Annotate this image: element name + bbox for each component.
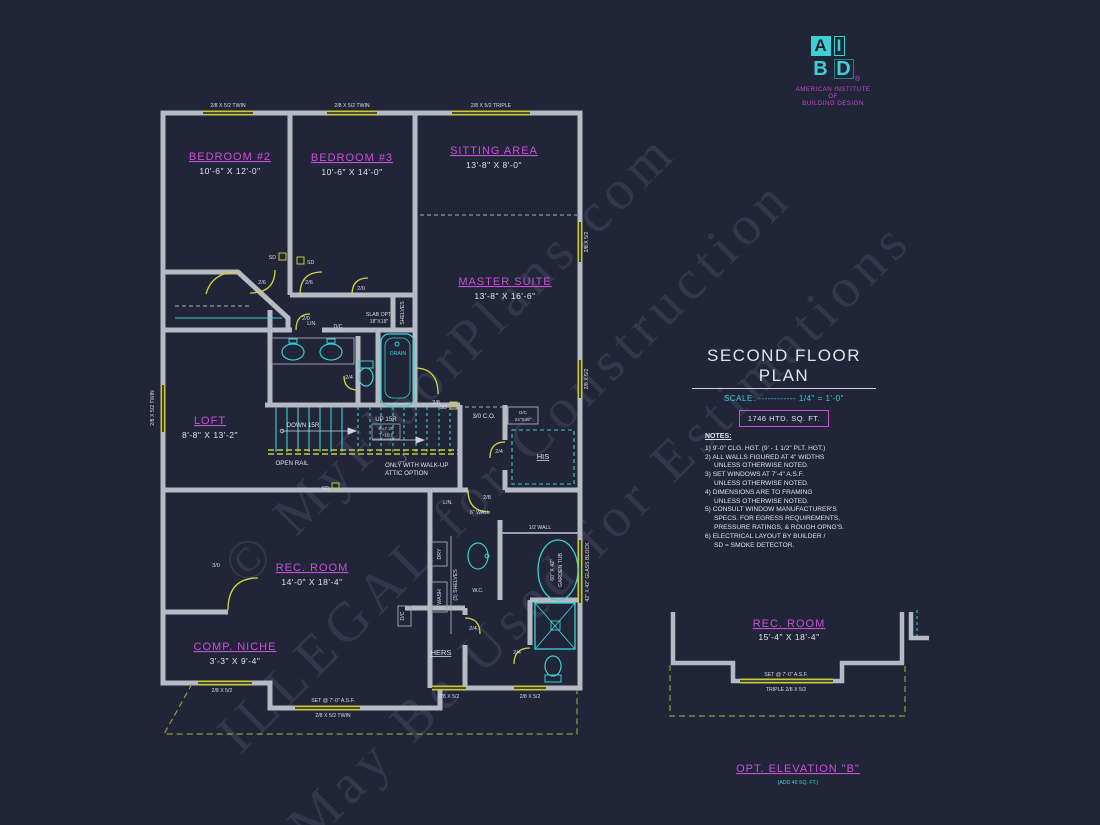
interior-walls bbox=[163, 113, 580, 688]
section-dims: 15'-4" X 18'-4" bbox=[758, 632, 819, 642]
hall-bath-fixtures bbox=[272, 334, 414, 406]
door-label: 2/0 bbox=[357, 286, 365, 292]
tread-label: T=10.5 bbox=[379, 433, 394, 438]
window-label: 2/8 X 5/2 bbox=[439, 694, 460, 700]
window-label: 2/8 X 5/2 TRIPLE bbox=[471, 103, 512, 109]
note-line: SD = SMOKE DETECTOR. bbox=[705, 542, 855, 551]
six-inch-wall-label: 6" WALL bbox=[470, 510, 490, 516]
dc-label: D/C bbox=[400, 611, 406, 620]
door-label: 3/0 bbox=[212, 563, 220, 569]
room-label-loft: LOFT bbox=[194, 415, 226, 427]
registered-mark: ® bbox=[855, 76, 860, 83]
note-line: 1) 9'-0" CLG. HGT. (9' - 1 1/2" PLT. HGT… bbox=[705, 445, 855, 454]
window-label: 2/8 X 5/2 TWIN bbox=[315, 713, 351, 719]
sd-label: SD bbox=[440, 405, 447, 411]
linen-label: LIN. bbox=[443, 500, 453, 506]
blueprint-page: © MyFloorPlans.com ILLEGAL for Construct… bbox=[0, 0, 1100, 825]
door-label: 2/6 bbox=[258, 280, 266, 286]
note-line: UNLESS OTHERWISE NOTED. bbox=[705, 462, 855, 471]
stair-treads bbox=[276, 407, 342, 452]
window-label: 2/8 X 5/2 bbox=[584, 369, 590, 390]
aibd-logo-mark: A I B D bbox=[811, 36, 856, 81]
note-line: 6) ELECTRICAL LAYOUT BY BUILDER / bbox=[705, 533, 855, 542]
outer-walls bbox=[163, 113, 580, 708]
sd-label: SD bbox=[269, 255, 276, 261]
shelves-label: SHELVES bbox=[400, 301, 406, 325]
stairs-down-label: DOWN 15R bbox=[287, 422, 320, 429]
slab-opt-line2: 18"X18" bbox=[370, 319, 389, 325]
note-line: SPECS. FOR EGRESS REQUIREMENTS, bbox=[705, 515, 855, 524]
room-dims-bedroom2: 10'-6" X 12'-0" bbox=[199, 166, 260, 176]
door-label: 2/6 bbox=[305, 280, 313, 286]
sheet-title: SECOND FLOOR PLAN bbox=[692, 346, 876, 389]
his-closet-label: HIS bbox=[537, 452, 550, 461]
floor-plan-drawing: 2/8 X 5/2 TWIN 2/8 X 5/2 TWIN 2/8 X 5/2 … bbox=[0, 0, 1100, 825]
attic-note-line1: ONLY WITH WALK-UP bbox=[385, 462, 448, 469]
logo-letter-i: I bbox=[834, 36, 845, 56]
opt-elevation-subtitle: (ADD 40 SQ. FT.) bbox=[778, 780, 819, 786]
window-set-label: SET @ 7'-0" A.S.F. bbox=[311, 698, 354, 704]
window-label: 2/8 X 5/2 TWIN bbox=[334, 103, 370, 109]
door-label: 2/4 bbox=[513, 650, 521, 656]
windows bbox=[163, 113, 580, 708]
dc-label: D/C bbox=[334, 324, 343, 330]
notes-heading: NOTES: bbox=[705, 433, 855, 442]
window-label: 2/8 X 5/2 bbox=[212, 688, 233, 694]
aibd-org-line3: BUILDING DESIGN bbox=[795, 100, 871, 107]
note-line: PRESSURE RATINGS, & ROUGH OPNG'S. bbox=[705, 524, 855, 533]
linen-label: LIN. bbox=[307, 321, 317, 327]
aibd-org-line1: AMERICAN INSTITUTE bbox=[795, 86, 871, 93]
window-label: 2/8 X 5/2 bbox=[520, 694, 541, 700]
aibd-logo: A I B D ® AMERICAN INSTITUTE OF BUILDING… bbox=[795, 36, 871, 108]
room-dims-sitting: 13'-8" X 8'-0" bbox=[466, 160, 522, 170]
logo-letter-d: D bbox=[834, 59, 854, 79]
washer-label: WASH bbox=[437, 589, 443, 605]
note-line: UNLESS OTHERWISE NOTED. bbox=[705, 480, 855, 489]
window-label: 2/8 X 5/2 TWIN bbox=[210, 103, 246, 109]
hers-closet-label: HERS bbox=[431, 648, 452, 657]
glass-block-label: 42" X 42" GLASS BLOCK bbox=[585, 542, 591, 602]
notes-block: NOTES: 1) 9'-0" CLG. HGT. (9' - 1 1/2" P… bbox=[705, 433, 855, 550]
logo-letter-b: B bbox=[811, 59, 831, 79]
logo-letter-a: A bbox=[811, 36, 831, 56]
room-dims-loft: 8'-8" X 13'-2" bbox=[182, 430, 238, 440]
open-rail bbox=[268, 450, 458, 454]
note-line: 2) ALL WALLS FIGURED AT 4" WIDTHS bbox=[705, 454, 855, 463]
riser-label: R=7.25 bbox=[379, 426, 394, 431]
aibd-org-line2: OF bbox=[795, 93, 871, 100]
section-window-label: TRIPLE 2/8 X 5/2 bbox=[766, 687, 806, 693]
attic-leader bbox=[398, 454, 406, 462]
note-line: 3) SET WINDOWS AT 7'-4" A.S.F. bbox=[705, 471, 855, 480]
section-title: REC. ROOM bbox=[753, 618, 826, 630]
room-dims-master: 13'-8" X 16'-6" bbox=[474, 291, 535, 301]
door-label: 2/4 bbox=[495, 449, 503, 455]
dc-size-label: 24"X36" bbox=[515, 417, 532, 422]
dryer-label: DRY bbox=[437, 548, 443, 559]
dc-label: D/C bbox=[519, 410, 528, 415]
slab-opt-line1: SLAB OPT. bbox=[366, 312, 392, 318]
sd-label: SD bbox=[322, 486, 329, 492]
aibd-org-name: AMERICAN INSTITUTE OF BUILDING DESIGN bbox=[795, 86, 871, 108]
opt-elevation-title: OPT. ELEVATION "B" bbox=[736, 763, 860, 775]
door-label: 2/4 bbox=[345, 375, 353, 381]
window-label: 2/8 X 5/2 bbox=[584, 232, 590, 253]
title-block: SECOND FLOOR PLAN SCALE: ------------ 1/… bbox=[692, 346, 876, 427]
note-line: 4) DIMENSIONS ARE TO FRAMING bbox=[705, 489, 855, 498]
wc-label: W.C. bbox=[472, 588, 483, 594]
heated-sqft-badge: 1746 HTD. SQ. FT. bbox=[739, 410, 829, 427]
stair-arrows bbox=[280, 428, 424, 443]
half-wall-label: 1/2 WALL bbox=[529, 525, 552, 531]
note-line: UNLESS OTHERWISE NOTED. bbox=[705, 498, 855, 507]
room-label-comp-niche: COMP. NICHE bbox=[194, 641, 277, 653]
window-label: 2/8 X 5/2 TWIN bbox=[150, 390, 156, 426]
scale-note: SCALE: ------------ 1/4" = 1'-0" bbox=[692, 394, 876, 403]
section-set-label: SET @ 7'-0" A.S.F. bbox=[764, 672, 807, 678]
room-label-master: MASTER SUITE bbox=[458, 276, 551, 288]
attic-note-line2: ATTIC OPTION bbox=[385, 470, 428, 477]
note-line: 5) CONSULT WINDOW MANUFACTURER'S bbox=[705, 506, 855, 515]
door-label: 2/8 bbox=[483, 495, 491, 501]
room-dims-comp-niche: 3'-3" X 9'-4" bbox=[210, 656, 261, 666]
room-label-bedroom3: BEDROOM #3 bbox=[311, 152, 393, 164]
stairs-up-label: UP 15R bbox=[375, 416, 397, 423]
cased-opening-label: 3/0 C.O. bbox=[472, 413, 495, 420]
sd-label: SD bbox=[307, 260, 314, 266]
room-label-rec: REC. ROOM bbox=[276, 562, 349, 574]
shelves3-label: (3) SHELVES bbox=[453, 569, 459, 601]
door-label: 2/4 bbox=[469, 626, 477, 632]
room-label-bedroom2: BEDROOM #2 bbox=[189, 151, 271, 163]
room-dims-bedroom3: 10'-6" X 14'-0" bbox=[321, 167, 382, 177]
room-label-sitting: SITTING AREA bbox=[450, 145, 538, 157]
garden-tub-line1: 60" X 42" bbox=[550, 559, 556, 581]
garden-tub-line2: GARDEN TUB bbox=[558, 553, 564, 587]
room-dims-rec: 14'-0" X 18'-4" bbox=[281, 577, 342, 587]
drain-label: DRAIN bbox=[390, 351, 406, 357]
door-label: 2/8 bbox=[432, 400, 440, 406]
open-rail-label: OPEN RAIL bbox=[275, 460, 309, 467]
